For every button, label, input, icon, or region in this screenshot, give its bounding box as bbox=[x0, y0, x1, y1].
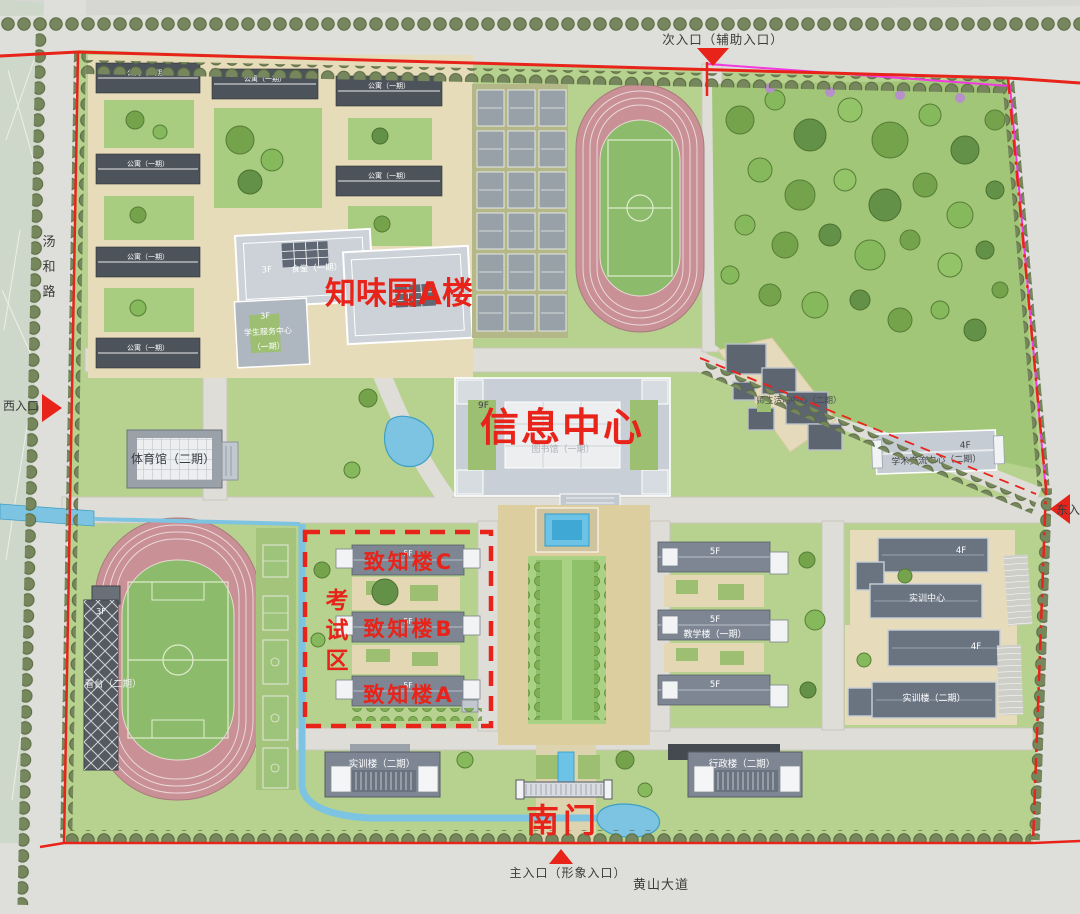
north-track bbox=[576, 84, 704, 332]
exchange-floors-label: 4F bbox=[960, 441, 971, 451]
dorm-building: 公寓（一期） bbox=[336, 166, 442, 196]
stand-label: 看台（二期） bbox=[84, 678, 141, 690]
teaching-building: 5F bbox=[658, 542, 788, 574]
campus-master-plan: 公寓（一期） 公寓（一期） 公寓（一期） 公寓（一期） 公寓（一期） 公寓（一期… bbox=[0, 0, 1080, 914]
west-road-char: 和 bbox=[42, 260, 55, 275]
training-center-cluster: 4F 实训中心 bbox=[850, 530, 1015, 628]
dorm-label: 公寓（一期） bbox=[127, 159, 169, 168]
southeast-bldg-label: 行政楼（二期） bbox=[709, 758, 776, 770]
info-center-annotation: 信息中心 bbox=[480, 406, 644, 451]
canteen-floors-label: 3F bbox=[261, 265, 272, 276]
dorm-building: 公寓（一期） bbox=[96, 338, 200, 368]
training-bldg-floors-label: 4F bbox=[971, 642, 981, 652]
zhizhi-c-annotation: 致知楼C bbox=[364, 550, 454, 574]
training-bldg-label: 实训楼（二期） bbox=[902, 692, 965, 704]
dorm-label: 公寓（一期） bbox=[368, 81, 410, 90]
dorm-building: 公寓（一期） bbox=[96, 247, 200, 277]
side-courts bbox=[256, 528, 296, 790]
teaching-floors-label: 5F bbox=[710, 680, 720, 690]
gym-label: 体育馆（二期） bbox=[131, 451, 215, 466]
training-building-cluster: 4F 实训楼（二期） bbox=[845, 625, 1017, 725]
teaching-label: 教学楼（一期） bbox=[683, 628, 746, 640]
southwest-bldg-label: 实训楼（二期） bbox=[349, 758, 416, 770]
training-center-floors-label: 4F bbox=[956, 546, 966, 556]
south-gate-annotation: 南门 bbox=[526, 801, 600, 840]
dorm-building: 公寓（一期） bbox=[96, 154, 200, 184]
west-entrance-label: 西入口 bbox=[3, 399, 39, 413]
southeast-building: 行政楼（二期） bbox=[668, 744, 802, 797]
west-road-char: 汤 bbox=[42, 235, 55, 250]
dorm-label: 公寓（一期） bbox=[127, 343, 169, 352]
student-service-center: 3F 学生服务中心 （一期） bbox=[234, 298, 309, 368]
teaching-building: 5F bbox=[658, 675, 788, 707]
gymnasium: 体育馆（二期） bbox=[127, 430, 238, 488]
stand-floors-label: 3F bbox=[96, 607, 106, 616]
service-floors-label: 3F bbox=[260, 311, 271, 321]
stadium: 3F 看台（二期） bbox=[84, 518, 260, 800]
tree-row bbox=[352, 708, 482, 721]
dorm-label: 公寓（一期） bbox=[127, 252, 169, 261]
exam-area-char: 试 bbox=[326, 618, 349, 644]
teaching-floors-label: 5F bbox=[710, 615, 720, 625]
basketball-courts-block bbox=[472, 84, 568, 338]
exam-area-char: 考 bbox=[326, 588, 349, 614]
central-plaza bbox=[498, 505, 650, 745]
west-road-char: 路 bbox=[42, 284, 55, 300]
teaching-building: 5F 教学楼（一期） bbox=[658, 610, 788, 642]
zhizhi-a-annotation: 致知楼A bbox=[363, 683, 454, 707]
dorm-label: 公寓（一期） bbox=[368, 171, 410, 180]
exam-area-char: 区 bbox=[326, 648, 349, 674]
north-entrance-label: 次入口（辅助入口） bbox=[662, 32, 784, 47]
south-road-label: 黄山大道 bbox=[633, 878, 689, 893]
southwest-building: 实训楼（二期） bbox=[325, 744, 440, 797]
teaching-floors-label: 5F bbox=[710, 547, 720, 557]
south-entrance-label: 主入口（形象入口） bbox=[509, 866, 626, 880]
zhizhi-b-annotation: 致知楼B bbox=[363, 617, 454, 641]
training-center-label: 实训中心 bbox=[909, 592, 945, 604]
zhiwei-building-annotation: 知味园A楼 bbox=[325, 276, 473, 312]
campus-map-svg: 公寓（一期） 公寓（一期） 公寓（一期） 公寓（一期） 公寓（一期） 公寓（一期… bbox=[0, 0, 1080, 914]
service-phase-label: （一期） bbox=[253, 341, 285, 352]
east-entrance-label: 东入口 bbox=[1056, 503, 1080, 517]
